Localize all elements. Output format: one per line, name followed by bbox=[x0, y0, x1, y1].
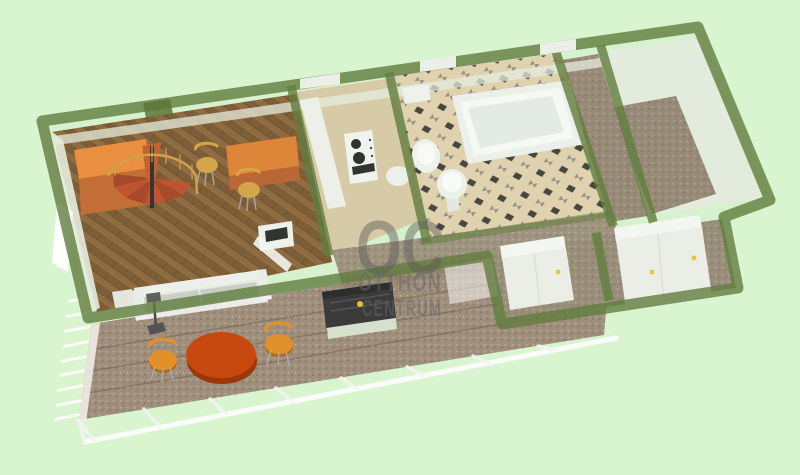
floorplan-scene: OC OTTHON CENTRUM bbox=[0, 0, 800, 475]
watermark-line2: CENTRUM bbox=[362, 295, 442, 321]
watermark-line1: OTTHON bbox=[358, 269, 442, 297]
watermark: OC OTTHON CENTRUM bbox=[356, 206, 444, 321]
round-terrace-table bbox=[186, 332, 257, 384]
floorplan-render: OC OTTHON CENTRUM bbox=[0, 0, 800, 475]
